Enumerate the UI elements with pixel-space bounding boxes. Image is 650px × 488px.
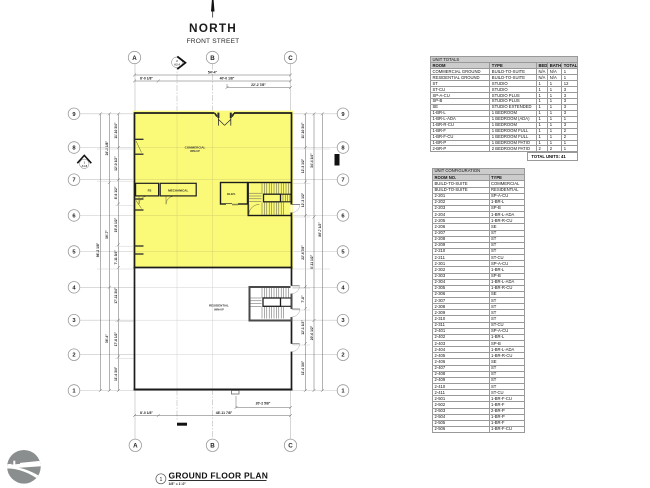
svg-text:36'-7": 36'-7" (105, 230, 109, 239)
svg-text:15'-6 1/2": 15'-6 1/2" (114, 217, 118, 232)
svg-text:11'-4 3/4": 11'-4 3/4" (114, 366, 118, 381)
svg-text:2: 2 (341, 353, 344, 359)
svg-text:ELEV.: ELEV. (227, 192, 236, 196)
svg-text:20'-2 5/8": 20'-2 5/8" (256, 402, 271, 406)
svg-text:7: 7 (72, 178, 75, 184)
svg-text:W/M-UP: W/M-UP (190, 149, 200, 153)
svg-text:17'-8 1/2": 17'-8 1/2" (114, 332, 118, 347)
svg-text:11'-10 3/4": 11'-10 3/4" (301, 122, 305, 139)
svg-text:COMMERCIAL: COMMERCIAL (185, 146, 206, 150)
svg-text:98'-2 1/8": 98'-2 1/8" (96, 242, 100, 257)
svg-text:FS: FS (148, 188, 152, 192)
svg-text:NORTH: NORTH (189, 21, 237, 35)
svg-text:11'-10 3/4": 11'-10 3/4" (114, 122, 118, 139)
svg-text:2: 2 (72, 353, 75, 359)
svg-text:A: A (133, 443, 138, 450)
svg-text:7: 7 (341, 178, 344, 184)
svg-text:48'-11 7/8": 48'-11 7/8" (216, 411, 233, 415)
svg-text:C: C (288, 55, 293, 62)
svg-text:24'-2 1/8": 24'-2 1/8" (105, 141, 109, 156)
svg-text:1/8" = 1'-0": 1/8" = 1'-0" (169, 482, 187, 486)
svg-text:W/M-UP: W/M-UP (214, 308, 224, 312)
svg-text:20'-0 1/2": 20'-0 1/2" (310, 325, 314, 340)
svg-text:17'-11 3/4": 17'-11 3/4" (114, 287, 118, 304)
svg-text:A1.8: A1.8 (82, 164, 88, 168)
svg-text:36'-4": 36'-4" (105, 334, 109, 343)
svg-text:22'-6 7/8": 22'-6 7/8" (301, 245, 305, 260)
svg-text:8'-6 1/2": 8'-6 1/2" (114, 186, 118, 199)
svg-text:34'-4 1/4": 34'-4 1/4" (310, 153, 314, 168)
svg-text:B: B (210, 55, 215, 62)
svg-text:B: B (210, 443, 215, 450)
svg-text:1: 1 (159, 477, 162, 483)
svg-text:FRONT STREET: FRONT STREET (187, 38, 240, 45)
svg-text:7'-11 3/4": 7'-11 3/4" (114, 250, 118, 265)
svg-text:12'-0 1/2": 12'-0 1/2" (114, 156, 118, 171)
svg-text:12'-1 1/2": 12'-1 1/2" (301, 320, 305, 335)
svg-text:11'-4 3/4": 11'-4 3/4" (301, 360, 305, 375)
svg-text:54'-4": 54'-4" (208, 71, 218, 75)
svg-text:8'-0 1/8": 8'-0 1/8" (140, 411, 153, 415)
svg-text:8'-0 1/8": 8'-0 1/8" (140, 77, 153, 81)
svg-text:86'-7 1/2": 86'-7 1/2" (318, 222, 322, 237)
svg-text:MECHANICAL: MECHANICAL (168, 188, 188, 192)
svg-text:8'-11 1/2": 8'-11 1/2" (310, 254, 314, 269)
svg-text:22'-2 7/8": 22'-2 7/8" (251, 83, 266, 87)
svg-text:12'-3 1/2": 12'-3 1/2" (301, 158, 305, 173)
svg-text:40'-0 1/8": 40'-0 1/8" (220, 77, 235, 81)
svg-text:A: A (132, 55, 137, 62)
svg-text:7'-8": 7'-8" (301, 295, 305, 303)
svg-text:C: C (288, 443, 293, 450)
svg-text:12'-3 1/2": 12'-3 1/2" (301, 192, 305, 207)
svg-text:RESIDENTIAL: RESIDENTIAL (209, 304, 229, 308)
svg-text:GROUND FLOOR PLAN: GROUND FLOOR PLAN (169, 471, 269, 481)
svg-text:A2.4: A2.4 (174, 63, 180, 67)
